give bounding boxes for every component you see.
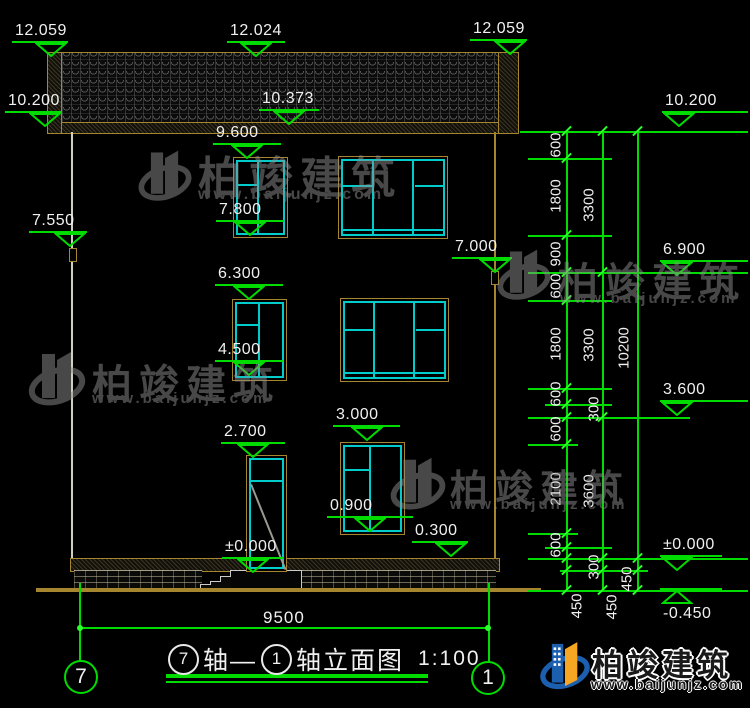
elevation-marker-right-wall: 7.000 [452,239,512,273]
title-axis-circle-1: 1 [261,644,292,675]
dim-value: 600 [548,416,565,441]
elevation-marker-w3-top: 9.600 [213,125,281,159]
elevation-triangle-icon [233,362,265,376]
dim-chain-line-b [602,131,604,590]
axis-bubble-7: 7 [64,660,98,694]
window-floor3-large [338,156,448,239]
dim-chain-line-a [566,131,568,590]
dim-value: 3600 [581,474,598,507]
elevation-marker-eave-right: 10.200 [662,93,748,127]
elevation-triangle-icon [354,518,386,532]
elevation-marker-plinth: 0.300 [412,523,468,557]
dim-value: 450 [569,593,586,618]
dim-value: 300 [586,396,603,421]
title-text-2: 轴立面图 [296,641,404,677]
watermark-logo-icon [26,345,88,411]
elevation-triangle-icon [237,444,269,458]
elevation-triangle-icon [494,41,526,55]
elevation-triangle-icon [237,559,269,573]
axis-extension-right [488,583,490,662]
elevation-marker-eave-mid: 10.373 [259,91,319,125]
dim-chain-line-c [637,131,639,590]
elevation-triangle-icon [234,222,266,236]
ground-line [36,588,541,592]
dim-value: 10200 [616,327,633,369]
dim-value: 2100 [548,472,565,505]
title-text-1: 轴— [203,641,257,677]
elevation-triangle-icon [231,145,263,159]
dim-value: 300 [586,554,603,579]
level-line-6300 [528,300,612,302]
elevation-triangle-icon [435,543,467,557]
plinth-brick-right [300,570,496,589]
window-frame [341,159,445,236]
elevation-marker-roof-left: 12.059 [12,23,68,57]
elevation-triangle-icon [663,113,695,127]
level-line-4500 [528,388,612,390]
elevation-triangle-icon [479,259,511,273]
elevation-triangle-icon [29,113,61,127]
elevation-triangle-icon [661,402,693,416]
dim-value: 1800 [548,327,565,360]
window-frame [343,301,446,379]
company-logo-url: www.baijunjz.com [591,676,744,692]
elevation-marker-roof-right: 12.059 [470,21,527,55]
dim-value: 3300 [581,188,598,221]
elevation-triangle-icon [54,233,86,247]
elevation-triangle-icon [351,427,383,441]
wall-section-mark-left [69,248,77,262]
elevation-marker-roof-mid: 12.024 [227,23,285,57]
title-underline-thin [166,681,428,683]
dim-value: 600 [548,273,565,298]
elevation-triangle-icon [661,557,693,571]
drawing-title: 7 轴— 1 轴立面图 1:100 [168,641,481,677]
dim-value: 600 [548,532,565,557]
window-floor2-large [340,298,449,382]
title-axis-circle-7: 7 [168,644,199,675]
elevation-drawing-canvas: 600 1800 900 600 1800 600 300 600 2100 6… [0,0,750,708]
wall-section-mark-right [491,271,499,285]
elevation-marker-door-top: 2.700 [221,424,285,458]
elevation-marker-zero-right: ±0.000 [660,537,722,571]
elevation-marker-w2-top: 6.300 [215,266,283,300]
dim-value: 600 [548,132,565,157]
watermark-logo-icon [136,144,194,206]
elevation-marker-w1-bottom: 0.900 [327,498,413,532]
elevation-triangle-icon [661,262,693,276]
dim-value: 1800 [548,179,565,212]
elevation-marker-3600: 3.600 [660,382,748,416]
bottom-dim-value: 9500 [263,608,305,628]
level-line-9600 [528,158,612,160]
elevation-marker-w2-bottom: 4.500 [215,342,283,376]
elevation-marker-left-wall: 7.550 [29,213,87,247]
elevation-marker-6900: 6.900 [660,242,748,276]
dim-value: 450 [604,594,621,619]
elevation-triangle-icon [35,43,67,57]
title-scale: 1:100 [418,647,481,671]
elevation-marker-eave-left: 10.200 [5,93,62,127]
axis-extension-left [79,583,81,661]
elevation-marker-w1-top: 3.000 [333,407,400,441]
roof-fascia-right [498,52,519,134]
elevation-triangle-icon [233,286,265,300]
dim-value: 600 [548,381,565,406]
company-logo-icon [538,636,592,694]
entry-landing [230,570,302,590]
elevation-marker-zero-door: ±0.000 [222,539,284,573]
dim-value: 3300 [581,328,598,361]
dim-value: 450 [619,566,636,591]
elevation-triangle-icon [273,111,305,125]
left-wall-line [71,132,73,559]
elevation-marker-w3-bottom: 7.800 [216,202,284,236]
elevation-triangle-icon [661,590,693,604]
elevation-marker-neg-ground: -0.450 [660,588,722,624]
right-wall-line [494,132,496,572]
level-line-3000 [528,444,578,446]
elevation-triangle-icon [240,43,272,57]
plinth-brick-left [74,570,202,589]
dim-value: 900 [548,241,565,266]
level-line-7800 [528,235,612,237]
